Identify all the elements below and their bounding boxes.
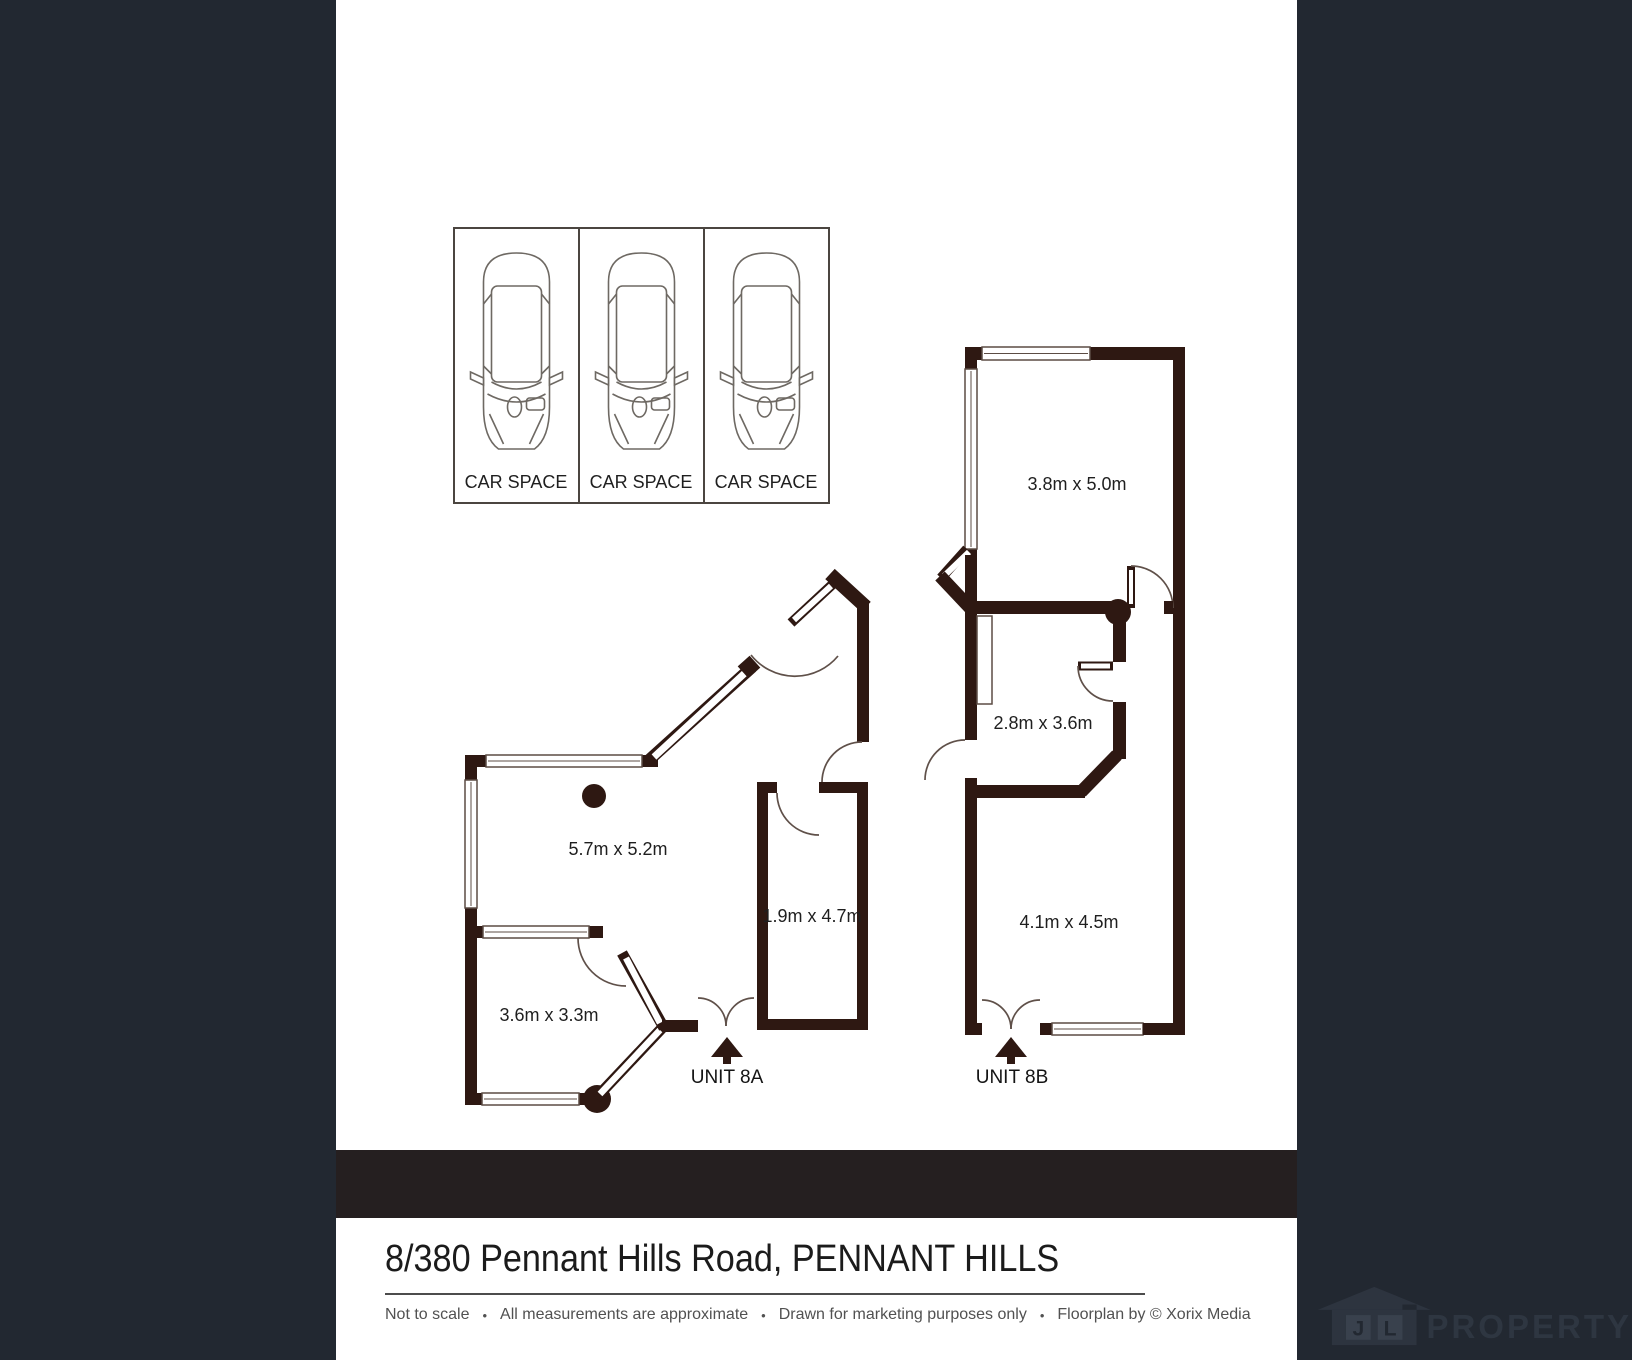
property-address: 8/380 Pennant Hills Road, PENNANT HILLS [385,1238,1206,1281]
door-arc [925,740,965,780]
entry-arrow-icon [711,1037,743,1064]
unit-8b-plan: 3.8m x 5.0m 2.8m x 3.6m 4.1m x 4.5m UNIT… [925,347,1185,1088]
door-arc [751,655,838,676]
door-arc [822,742,862,782]
disclaimer-line: Not to scale • All measurements are appr… [385,1306,1297,1324]
wardrobe [977,616,992,704]
logo-letter-j: J [1352,1317,1364,1340]
car-space-label: CAR SPACE [715,472,818,492]
bullet-separator: • [1040,1308,1045,1323]
jl-property-logo: J L PROPERTY [1316,1280,1632,1352]
title-underline [385,1293,1145,1295]
divider-band [336,1150,1297,1218]
door-arc [1078,666,1113,701]
room-dimension-label: 3.8m x 5.0m [1027,474,1126,494]
car-space-label: CAR SPACE [590,472,693,492]
room-dimension-label: 1.9m x 4.7m [762,906,861,926]
room-dimension-label: 5.7m x 5.2m [568,839,667,859]
room-dimension-label: 3.6m x 3.3m [499,1005,598,1025]
floorplan-page: CAR SPACE CAR SPACE CAR SPACE [0,0,1632,1360]
entry-door-arc [726,998,754,1026]
house-icon: J L [1316,1280,1432,1352]
car-icon [471,253,563,449]
logo-name: PROPERTY [1426,1308,1632,1346]
car-spaces: CAR SPACE CAR SPACE CAR SPACE [454,228,829,503]
car-icon [596,253,688,449]
unit-entry-label: UNIT 8B [976,1067,1049,1088]
disclaimer-item: Floorplan by © Xorix Media [1057,1306,1250,1324]
room-dimension-label: 2.8m x 3.6m [993,713,1092,733]
bullet-separator: • [761,1308,766,1323]
room-dimension-label: 4.1m x 4.5m [1019,912,1118,932]
entry-arrow-icon [995,1037,1027,1064]
bullet-separator: • [482,1308,487,1323]
entry-door-arc [698,998,726,1026]
car-icon [721,253,813,449]
unit-8a-plan: 5.7m x 5.2m 1.9m x 4.7m 3.6m x 3.3m UNIT… [465,574,869,1113]
car-space-label: CAR SPACE [465,472,568,492]
disclaimer-item: All measurements are approximate [500,1306,748,1324]
column [582,784,606,808]
door-arc [578,938,626,986]
entry-door-arc [1011,1000,1040,1029]
disclaimer-item: Not to scale [385,1306,469,1324]
entry-door-arc [982,1000,1011,1029]
disclaimer-item: Drawn for marketing purposes only [779,1306,1027,1324]
logo-letter-l: L [1384,1317,1397,1340]
title-block: 8/380 Pennant Hills Road, PENNANT HILLS … [385,1238,1297,1324]
unit-entry-label: UNIT 8A [691,1067,764,1088]
